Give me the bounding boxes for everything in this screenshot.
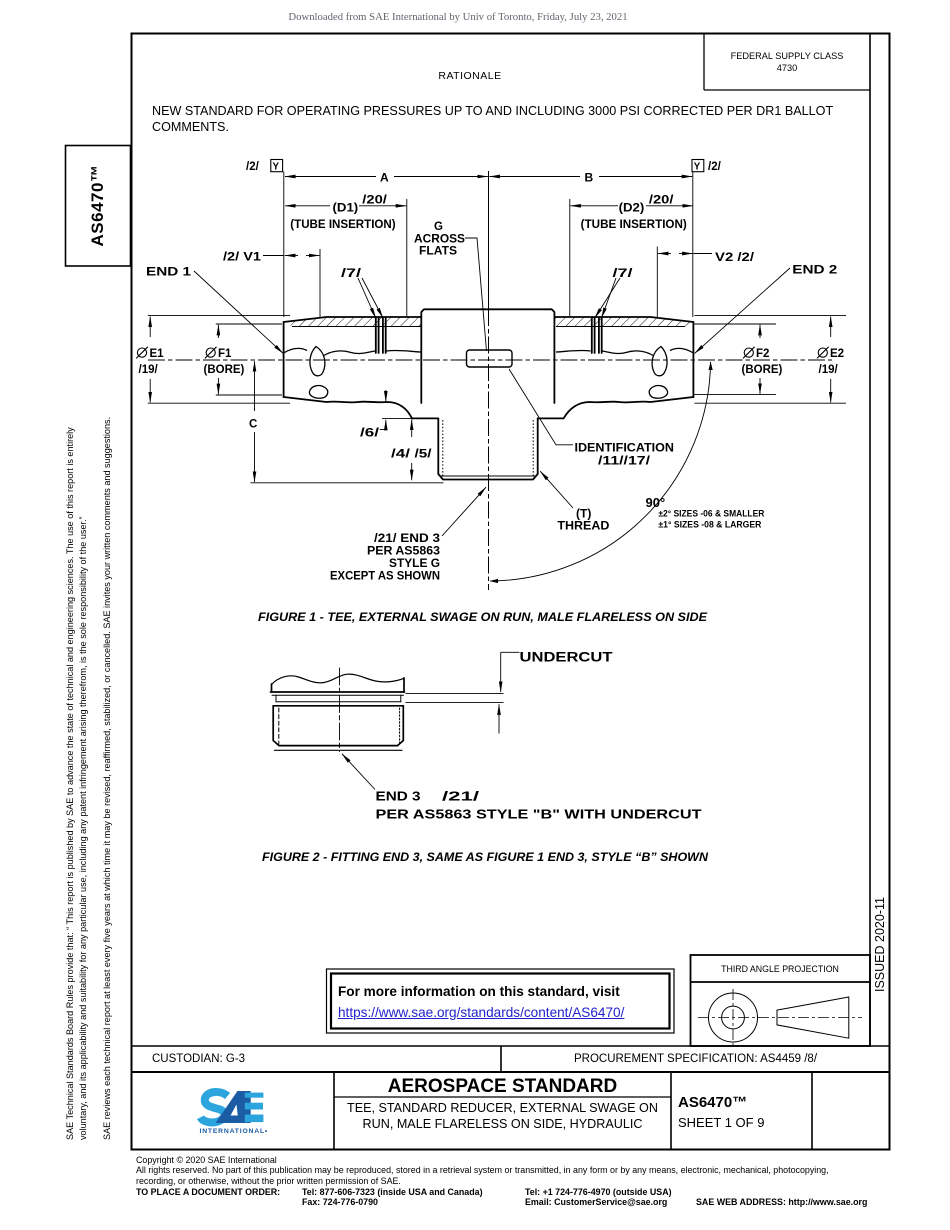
svg-text:/11//17/: /11//17/	[598, 454, 651, 468]
svg-text:EXCEPT AS SHOWN: EXCEPT AS SHOWN	[330, 571, 440, 583]
svg-text:E1: E1	[150, 348, 165, 360]
svg-text:E2: E2	[830, 348, 844, 360]
svg-text:(D1): (D1)	[333, 203, 359, 215]
svg-text:/21/: /21/	[442, 789, 480, 804]
svg-text:/21/ END 3: /21/ END 3	[374, 533, 440, 545]
svg-text:Y: Y	[273, 161, 280, 172]
svg-text:B: B	[585, 170, 594, 184]
svg-text:A: A	[380, 170, 389, 184]
svg-text:C: C	[249, 418, 257, 430]
svg-text:Y: Y	[694, 161, 701, 172]
svg-text:±2° SIZES -06 & SMALLER: ±2° SIZES -06 & SMALLER	[658, 509, 765, 519]
svg-text:THREAD: THREAD	[557, 519, 609, 533]
svg-text:/7/: /7/	[341, 268, 362, 280]
svg-text:±1° SIZES -08 & LARGER: ±1° SIZES -08 & LARGER	[658, 519, 762, 529]
svg-text:/19/: /19/	[139, 364, 159, 376]
svg-text:/5/: /5/	[415, 449, 433, 461]
svg-text:(TUBE INSERTION): (TUBE INSERTION)	[581, 219, 687, 231]
svg-text:/2/ V1: /2/ V1	[223, 251, 262, 263]
svg-text:F2: F2	[756, 348, 769, 360]
svg-text:/7/: /7/	[613, 268, 634, 280]
svg-text:FIGURE 1 - TEE, EXTERNAL SWAGE: FIGURE 1 - TEE, EXTERNAL SWAGE ON RUN, M…	[258, 610, 708, 624]
svg-text:ACROSS: ACROSS	[414, 233, 465, 245]
svg-text:END 2: END 2	[792, 264, 837, 276]
svg-text:STYLE G: STYLE G	[389, 558, 440, 570]
svg-text:/6/: /6/	[360, 428, 380, 440]
svg-text:(TUBE INSERTION): (TUBE INSERTION)	[290, 219, 395, 231]
svg-text:/20/: /20/	[649, 195, 675, 207]
svg-text:INTERNATIONAL•: INTERNATIONAL•	[200, 1128, 269, 1135]
svg-text:/19/: /19/	[819, 364, 839, 376]
svg-text:/4/: /4/	[391, 449, 411, 461]
svg-text:PER AS5863: PER AS5863	[367, 546, 440, 558]
svg-text:FLATS: FLATS	[419, 246, 457, 258]
svg-text:IDENTIFICATION: IDENTIFICATION	[575, 441, 675, 455]
svg-text:END 1: END 1	[146, 266, 192, 278]
svg-text:(D2): (D2)	[619, 203, 645, 215]
svg-text:FIGURE 2 - FITTING END 3, SAME: FIGURE 2 - FITTING END 3, SAME AS FIGURE…	[262, 850, 709, 864]
svg-text:/2/: /2/	[708, 161, 722, 173]
svg-text:/20/: /20/	[362, 195, 388, 207]
svg-text:(BORE): (BORE)	[742, 364, 783, 376]
svg-text:V2 /2/: V2 /2/	[715, 252, 755, 264]
svg-text:F1: F1	[218, 348, 232, 360]
svg-text:PER AS5863 STYLE "B" WITH UNDE: PER AS5863 STYLE "B" WITH UNDERCUT	[376, 807, 702, 822]
svg-text:(BORE): (BORE)	[204, 364, 245, 376]
svg-text:END 3: END 3	[376, 789, 421, 804]
svg-text:UNDERCUT: UNDERCUT	[520, 649, 614, 664]
svg-text:G: G	[434, 221, 443, 233]
svg-text:/2/: /2/	[246, 161, 260, 173]
